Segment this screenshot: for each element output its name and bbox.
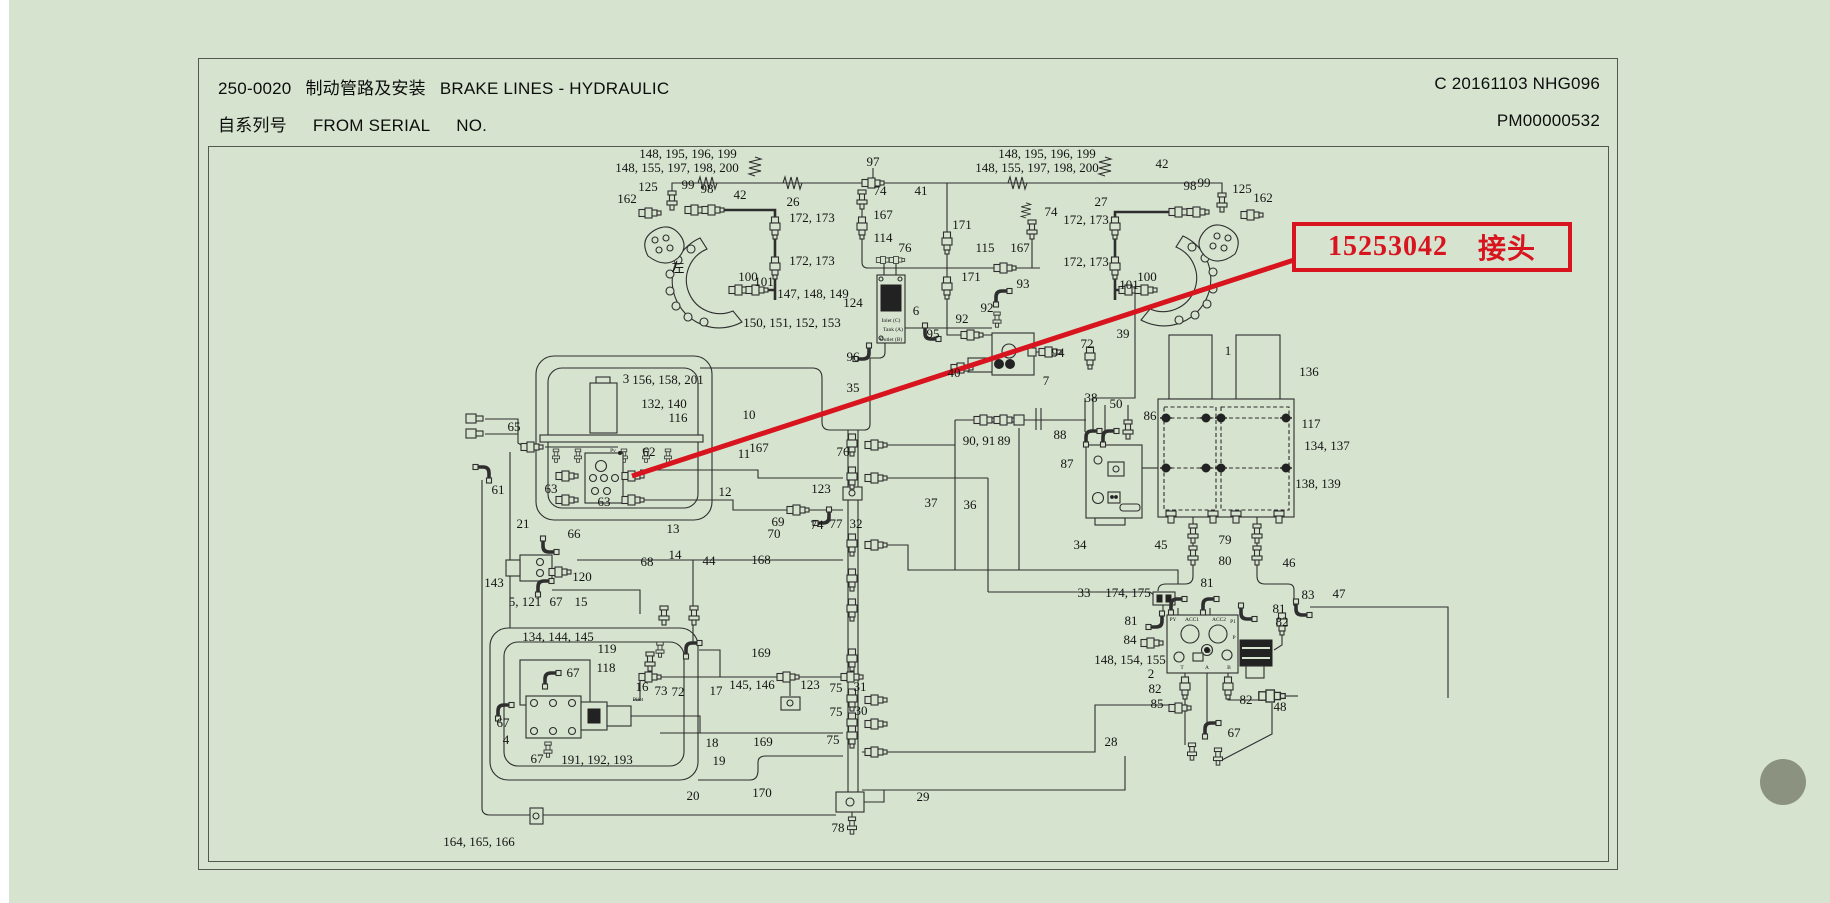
svg-text:63: 63 <box>598 494 611 509</box>
svg-text:172, 173: 172, 173 <box>1063 212 1109 227</box>
svg-text:92: 92 <box>981 300 994 315</box>
svg-text:72: 72 <box>672 684 685 699</box>
svg-text:67: 67 <box>550 594 564 609</box>
reservoir-tank <box>590 383 617 433</box>
svg-text:37: 37 <box>925 495 939 510</box>
svg-text:12: 12 <box>719 484 732 499</box>
svg-text:左: 左 <box>671 260 684 275</box>
svg-text:Inlet (C): Inlet (C) <box>882 317 901 324</box>
svg-text:67: 67 <box>531 751 545 766</box>
svg-text:99: 99 <box>1198 175 1211 190</box>
svg-text:48: 48 <box>1274 699 1287 714</box>
svg-text:66: 66 <box>568 526 582 541</box>
svg-text:114: 114 <box>873 230 893 245</box>
scroll-to-top-button[interactable] <box>1760 759 1806 805</box>
svg-text:39: 39 <box>1117 326 1130 341</box>
svg-text:Pv: Pv <box>610 448 616 454</box>
figure-code: 250-0020 <box>218 79 291 98</box>
svg-text:118: 118 <box>596 660 615 675</box>
svg-text:117: 117 <box>1301 416 1321 431</box>
svg-text:5, 121: 5, 121 <box>509 594 542 609</box>
svg-text:148, 195, 196, 199: 148, 195, 196, 199 <box>998 146 1096 161</box>
svg-text:76: 76 <box>899 240 913 255</box>
figure-title-zh: 制动管路及安装 <box>305 79 425 98</box>
svg-text:Outlet (B): Outlet (B) <box>880 336 903 343</box>
svg-text:2: 2 <box>1148 666 1155 681</box>
svg-text:148, 155, 197, 198, 200: 148, 155, 197, 198, 200 <box>615 160 739 175</box>
right-caliper-bracket <box>1199 225 1238 261</box>
svg-text:P1: P1 <box>1230 619 1236 625</box>
svg-text:13: 13 <box>667 521 680 536</box>
svg-text:174, 175: 174, 175 <box>1105 585 1151 600</box>
svg-text:74: 74 <box>874 183 888 198</box>
svg-text:172, 173: 172, 173 <box>789 253 835 268</box>
svg-text:32: 32 <box>850 516 863 531</box>
svg-text:148, 155, 197, 198, 200: 148, 155, 197, 198, 200 <box>975 160 1099 175</box>
svg-text:123: 123 <box>811 481 831 496</box>
svg-text:3: 3 <box>623 371 630 386</box>
svg-text:93: 93 <box>1017 276 1030 291</box>
mount-bracket <box>540 435 703 442</box>
svg-text:156, 158, 201: 156, 158, 201 <box>632 372 704 387</box>
svg-text:18: 18 <box>706 735 719 750</box>
svg-text:27: 27 <box>1095 194 1109 209</box>
svg-text:84: 84 <box>1124 632 1138 647</box>
highlighted-part-name: 接头 <box>1478 227 1536 267</box>
svg-text:31: 31 <box>854 679 867 694</box>
highlighted-part-number: 15253042 <box>1328 231 1448 263</box>
svg-text:77: 77 <box>830 516 844 531</box>
svg-text:81: 81 <box>1125 613 1138 628</box>
svg-text:75: 75 <box>830 704 843 719</box>
svg-text:170: 170 <box>752 785 772 800</box>
svg-text:96: 96 <box>847 349 861 364</box>
svg-text:169: 169 <box>753 734 773 749</box>
svg-text:20: 20 <box>687 788 700 803</box>
svg-text:B: B <box>1227 665 1231 671</box>
svg-text:72: 72 <box>1081 336 1094 351</box>
svg-text:ACC2: ACC2 <box>1212 617 1226 623</box>
svg-text:94: 94 <box>1052 345 1066 360</box>
svg-text:Pilot: Pilot <box>633 697 644 703</box>
svg-text:167: 167 <box>1010 240 1030 255</box>
svg-text:67: 67 <box>1228 725 1242 740</box>
svg-text:75: 75 <box>827 732 840 747</box>
svg-text:85: 85 <box>1151 696 1164 711</box>
svg-text:74: 74 <box>811 517 825 532</box>
svg-text:61: 61 <box>492 482 505 497</box>
svg-text:68: 68 <box>641 554 654 569</box>
svg-text:83: 83 <box>1302 587 1315 602</box>
svg-text:167: 167 <box>873 207 893 222</box>
svg-text:82: 82 <box>1276 614 1289 629</box>
svg-text:150, 151, 152, 153: 150, 151, 152, 153 <box>743 315 841 330</box>
svg-text:148, 154, 155: 148, 154, 155 <box>1094 652 1166 667</box>
svg-text:36: 36 <box>964 497 978 512</box>
svg-text:145, 146: 145, 146 <box>729 677 775 692</box>
svg-text:101: 101 <box>754 274 774 289</box>
parts-catalog-page: 250-0020制动管路及安装BRAKE LINES - HYDRAULIC C… <box>0 0 1830 903</box>
svg-text:1: 1 <box>1225 343 1232 358</box>
svg-text:125: 125 <box>638 179 658 194</box>
svg-text:97: 97 <box>867 154 881 169</box>
svg-text:168: 168 <box>751 552 771 567</box>
svg-text:148, 195, 196, 199: 148, 195, 196, 199 <box>639 146 737 161</box>
svg-text:14: 14 <box>669 547 683 562</box>
svg-text:P2: P2 <box>1205 649 1211 655</box>
svg-text:A: A <box>1205 665 1209 671</box>
svg-text:30: 30 <box>855 703 868 718</box>
svg-text:Tank (A): Tank (A) <box>883 326 903 333</box>
svg-text:26: 26 <box>787 194 801 209</box>
svg-text:P: P <box>1232 635 1235 641</box>
svg-text:100: 100 <box>1137 269 1157 284</box>
svg-text:44: 44 <box>703 553 717 568</box>
sheet-title: 250-0020制动管路及安装BRAKE LINES - HYDRAULIC <box>218 74 669 99</box>
svg-text:75: 75 <box>830 680 843 695</box>
svg-text:28: 28 <box>1105 734 1118 749</box>
svg-text:134, 144, 145: 134, 144, 145 <box>522 629 594 644</box>
solenoid-valve <box>1240 640 1272 666</box>
svg-text:76: 76 <box>837 444 851 459</box>
svg-text:50: 50 <box>1110 396 1123 411</box>
svg-text:38: 38 <box>1085 390 1098 405</box>
svg-text:89: 89 <box>998 433 1011 448</box>
svg-text:33: 33 <box>1078 585 1091 600</box>
svg-text:143: 143 <box>484 575 504 590</box>
accumulator-mount-plate <box>1158 399 1294 523</box>
control-box <box>1086 445 1142 525</box>
svg-text:164, 165, 166: 164, 165, 166 <box>443 834 515 849</box>
svg-text:42: 42 <box>734 187 747 202</box>
svg-text:34: 34 <box>1074 537 1088 552</box>
figure-title-en: BRAKE LINES - HYDRAULIC <box>440 79 669 98</box>
svg-text:40: 40 <box>948 365 961 380</box>
compensator-valve <box>506 555 552 581</box>
serial-label-en: FROM SERIAL <box>313 116 430 135</box>
left-caliper-bracket <box>645 227 684 263</box>
svg-text:147, 148, 149: 147, 148, 149 <box>777 286 849 301</box>
svg-text:79: 79 <box>1219 532 1232 547</box>
svg-text:88: 88 <box>1054 427 1067 442</box>
serial-label-no: NO. <box>456 116 487 135</box>
svg-text:74: 74 <box>1045 204 1059 219</box>
svg-text:123: 123 <box>800 677 820 692</box>
svg-text:17: 17 <box>710 683 724 698</box>
svg-text:98: 98 <box>701 181 714 196</box>
svg-text:134, 137: 134, 137 <box>1304 438 1350 453</box>
svg-text:73: 73 <box>655 683 668 698</box>
svg-text:95: 95 <box>927 326 940 341</box>
svg-text:162: 162 <box>1253 190 1273 205</box>
svg-text:6: 6 <box>913 303 920 318</box>
svg-text:21: 21 <box>517 516 530 531</box>
svg-text:80: 80 <box>1219 553 1232 568</box>
left-brake-disc <box>645 227 742 328</box>
svg-text:16: 16 <box>636 679 650 694</box>
svg-text:191, 192, 193: 191, 192, 193 <box>561 752 633 767</box>
svg-text:169: 169 <box>751 645 771 660</box>
svg-text:82: 82 <box>1240 692 1253 707</box>
svg-text:35: 35 <box>847 380 860 395</box>
svg-text:90, 91: 90, 91 <box>963 433 996 448</box>
svg-text:65: 65 <box>508 419 521 434</box>
svg-text:46: 46 <box>1283 555 1297 570</box>
svg-text:171: 171 <box>961 269 981 284</box>
svg-text:ACC1: ACC1 <box>1185 617 1199 623</box>
svg-text:172, 173: 172, 173 <box>1063 254 1109 269</box>
svg-text:47: 47 <box>1333 586 1347 601</box>
document-number: PM00000532 <box>1497 111 1600 131</box>
svg-text:98: 98 <box>1184 178 1197 193</box>
svg-text:132, 140: 132, 140 <box>641 396 687 411</box>
svg-text:124: 124 <box>843 295 863 310</box>
serial-line: 自系列号FROM SERIALNO. <box>218 111 487 136</box>
page-left-margin <box>0 0 9 903</box>
svg-text:119: 119 <box>597 641 616 656</box>
svg-text:41: 41 <box>915 183 928 198</box>
svg-text:67: 67 <box>567 665 581 680</box>
revision-code: C 20161103 NHG096 <box>1434 74 1600 94</box>
svg-text:10: 10 <box>743 407 756 422</box>
svg-text:86: 86 <box>1144 408 1158 423</box>
svg-text:15: 15 <box>575 594 588 609</box>
svg-text:171: 171 <box>952 217 972 232</box>
svg-text:4: 4 <box>503 732 510 747</box>
svg-text:101: 101 <box>1119 277 1139 292</box>
svg-text:45: 45 <box>1155 537 1168 552</box>
svg-text:29: 29 <box>917 789 930 804</box>
svg-text:82: 82 <box>1149 681 1162 696</box>
svg-text:19: 19 <box>713 753 726 768</box>
svg-text:172, 173: 172, 173 <box>789 210 835 225</box>
svg-text:167: 167 <box>749 440 769 455</box>
svg-text:67: 67 <box>497 715 511 730</box>
svg-text:92: 92 <box>956 311 969 326</box>
fittings <box>208 146 1312 834</box>
svg-text:70: 70 <box>768 526 781 541</box>
serial-label-zh: 自系列号 <box>218 116 287 135</box>
svg-text:162: 162 <box>617 191 637 206</box>
svg-text:78: 78 <box>832 820 845 835</box>
highlighted-part-callout: 15253042 接头 <box>1292 222 1572 272</box>
svg-text:81: 81 <box>1201 575 1214 590</box>
svg-text:120: 120 <box>572 569 592 584</box>
svg-text:62: 62 <box>643 444 656 459</box>
svg-text:42: 42 <box>1156 156 1169 171</box>
svg-text:7: 7 <box>1043 373 1050 388</box>
svg-text:125: 125 <box>1232 181 1252 196</box>
svg-text:63: 63 <box>545 481 558 496</box>
svg-text:138, 139: 138, 139 <box>1295 476 1341 491</box>
svg-text:136: 136 <box>1299 364 1319 379</box>
svg-text:87: 87 <box>1061 456 1075 471</box>
svg-text:PY: PY <box>1169 617 1176 623</box>
svg-text:116: 116 <box>668 410 688 425</box>
svg-text:99: 99 <box>682 177 695 192</box>
svg-text:115: 115 <box>975 240 994 255</box>
